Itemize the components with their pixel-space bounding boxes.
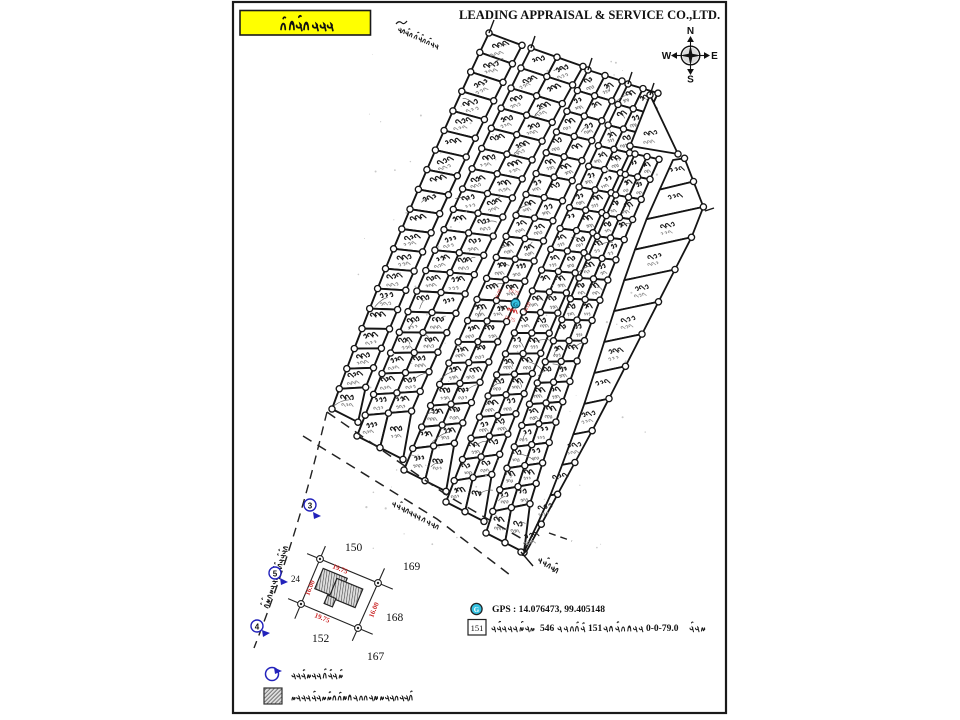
svg-text:4: 4 <box>255 622 260 631</box>
svg-text:GPS : 14.076473, 99.405148: GPS : 14.076473, 99.405148 <box>492 604 605 615</box>
svg-text:152: 152 <box>312 633 330 645</box>
svg-text:167: 167 <box>367 651 385 663</box>
svg-text:G: G <box>513 302 518 309</box>
svg-text:3: 3 <box>308 501 313 510</box>
svg-text:24: 24 <box>291 574 301 584</box>
svg-text:N: N <box>687 26 694 37</box>
svg-text:168: 168 <box>386 612 404 624</box>
svg-text:E: E <box>711 51 718 62</box>
svg-text:S: S <box>687 75 694 86</box>
svg-text:W: W <box>662 51 672 62</box>
svg-text:150: 150 <box>345 542 363 554</box>
svg-text:5: 5 <box>273 569 278 578</box>
svg-text:0-0-79.0: 0-0-79.0 <box>646 624 679 634</box>
svg-text:169: 169 <box>403 561 421 573</box>
svg-text:151: 151 <box>588 624 603 634</box>
svg-text:LEADING APPRAISAL & SERVICE CO: LEADING APPRAISAL & SERVICE CO.,LTD. <box>459 8 720 22</box>
svg-text:546: 546 <box>540 624 555 634</box>
svg-text:G: G <box>474 606 480 614</box>
svg-text:151: 151 <box>471 623 484 633</box>
